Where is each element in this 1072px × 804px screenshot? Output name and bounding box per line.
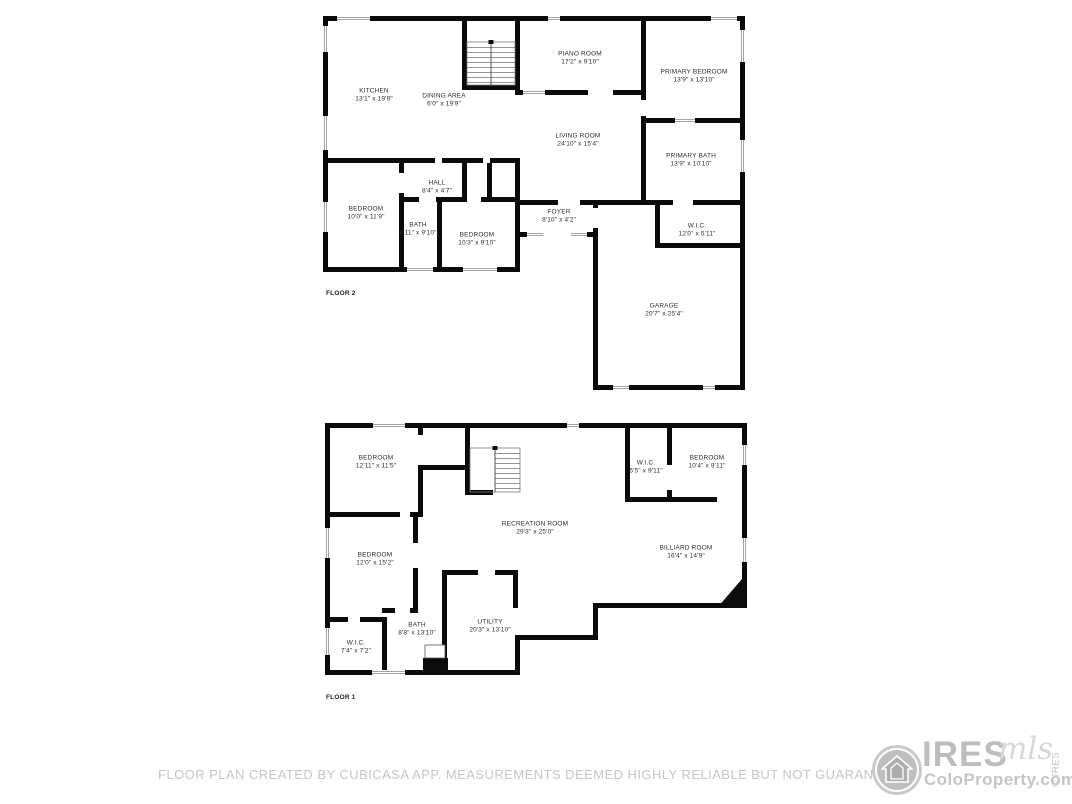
disclaimer-text: FLOOR PLAN CREATED BY CUBICASA APP. MEAS…	[158, 767, 914, 782]
room-dims: 17'2" x 9'10"	[561, 58, 599, 66]
room-dims: 24'10" x 15'4"	[557, 140, 598, 148]
room-dims: 8'8" x 13'10"	[398, 629, 436, 637]
room-name: W.I.C.	[637, 459, 656, 467]
room-name: RECREATION ROOM	[502, 520, 568, 528]
room-label-recreation-room: RECREATION ROOM 29'3" x 25'0"	[502, 520, 568, 535]
logo-brand-text: IRES	[922, 737, 1008, 772]
room-dims: 10'3" x 9'10"	[458, 239, 496, 247]
room-name: DINING AREA	[422, 92, 466, 100]
room-dims: 6'0" x 19'9"	[427, 100, 461, 108]
room-name: LIVING ROOM	[556, 132, 601, 140]
room-label-dining-area: DINING AREA 6'0" x 19'9"	[422, 92, 466, 107]
room-name: BEDROOM	[359, 454, 394, 462]
room-name: BEDROOM	[460, 231, 495, 239]
room-label-garage: GARAGE 20'7" x 25'4"	[645, 302, 683, 317]
room-label-bedroom-tl: BEDROOM 12'11" x 11'5"	[356, 454, 396, 469]
room-dims: 20'7" x 25'4"	[645, 310, 683, 318]
floor-plan-page: KITCHEN 13'1" x 19'9" DINING AREA 6'0" x…	[0, 0, 1072, 804]
room-dims: 12'11" x 11'5"	[356, 462, 396, 470]
room-name: BEDROOM	[358, 551, 393, 559]
room-label-hall: HALL 8'4" x 4'7"	[422, 179, 452, 194]
room-name: HALL	[429, 179, 446, 187]
room-name: BATH	[409, 221, 426, 229]
room-name: KITCHEN	[359, 87, 389, 95]
room-dims: 5'5" x 9'11"	[629, 467, 662, 475]
room-label-wic-bl: W.I.C. 7'4" x 7'2"	[341, 639, 371, 654]
house-icon	[870, 743, 924, 797]
room-label-bedroom-tr: BEDROOM 10'4" x 9'11"	[688, 454, 725, 469]
room-dims: 12'0" x 5'11"	[678, 230, 715, 238]
room-label-piano-room: PIANO ROOM 17'2" x 9'10"	[558, 50, 602, 65]
room-dims: 29'3" x 25'0"	[516, 528, 554, 536]
room-dims: 8'4" x 4'7"	[422, 187, 452, 195]
room-label-bath: BATH 4'11" x 9'10"	[399, 221, 436, 236]
room-name: PIANO ROOM	[558, 50, 602, 58]
room-label-bath-f1: BATH 8'8" x 13'10"	[398, 621, 436, 636]
room-label-primary-bedroom: PRIMARY BEDROOM 13'9" x 13'10"	[660, 68, 727, 83]
room-dims: 10'4" x 9'11"	[688, 462, 725, 470]
room-label-bedroom-1: BEDROOM 10'0" x 11'9"	[347, 205, 384, 220]
floor1-tag: FLOOR 1	[326, 694, 356, 701]
room-name: UTILITY	[477, 618, 502, 626]
room-label-bedroom-2: BEDROOM 10'3" x 9'10"	[458, 231, 496, 246]
room-dims: 13'9" x 13'10"	[673, 76, 714, 84]
room-dims: 20'3" x 13'10"	[469, 626, 510, 634]
room-label-bedroom-ml: BEDROOM 12'0" x 15'2"	[356, 551, 394, 566]
room-label-wic: W.I.C. 12'0" x 5'11"	[678, 222, 715, 237]
room-label-foyer: FOYER 8'10" x 4'2"	[542, 208, 576, 223]
room-label-utility: UTILITY 20'3" x 13'10"	[469, 618, 510, 633]
room-dims: 7'4" x 7'2"	[341, 647, 371, 655]
ires-logo: IRES mls ColoProperty.com © IRES	[868, 740, 1070, 802]
room-dims: 10'0" x 11'9"	[347, 213, 384, 221]
room-dims: 13'9" x 10'10"	[670, 160, 711, 168]
room-dims: 13'1" x 19'9"	[355, 95, 393, 103]
room-dims: 8'10" x 4'2"	[542, 216, 576, 224]
room-name: BATH	[408, 621, 425, 629]
room-dims: 4'11" x 9'10"	[399, 229, 436, 237]
room-label-billiard-room: BILLIARD ROOM 16'4" x 14'9"	[660, 544, 713, 559]
room-name: BILLIARD ROOM	[660, 544, 713, 552]
floor2-tag: FLOOR 2	[326, 290, 356, 297]
room-label-primary-bath: PRIMARY BATH 13'9" x 10'10"	[666, 152, 716, 167]
room-name: PRIMARY BATH	[666, 152, 716, 160]
logo-copyright: © IRES	[1051, 740, 1062, 800]
room-name: BEDROOM	[690, 454, 725, 462]
room-name: PRIMARY BEDROOM	[660, 68, 727, 76]
room-name: GARAGE	[650, 302, 679, 310]
room-label-living-room: LIVING ROOM 24'10" x 15'4"	[556, 132, 601, 147]
logo-mls-script: mls	[998, 734, 1053, 765]
room-name: W.I.C.	[347, 639, 366, 647]
room-label-kitchen: KITCHEN 13'1" x 19'9"	[355, 87, 393, 102]
room-dims: 16'4" x 14'9"	[667, 552, 705, 560]
room-name: BEDROOM	[349, 205, 384, 213]
room-label-wic-tr: W.I.C. 5'5" x 9'11"	[629, 459, 662, 474]
room-dims: 12'0" x 15'2"	[356, 559, 394, 567]
room-name: W.I.C.	[688, 222, 707, 230]
room-name: FOYER	[547, 208, 570, 216]
